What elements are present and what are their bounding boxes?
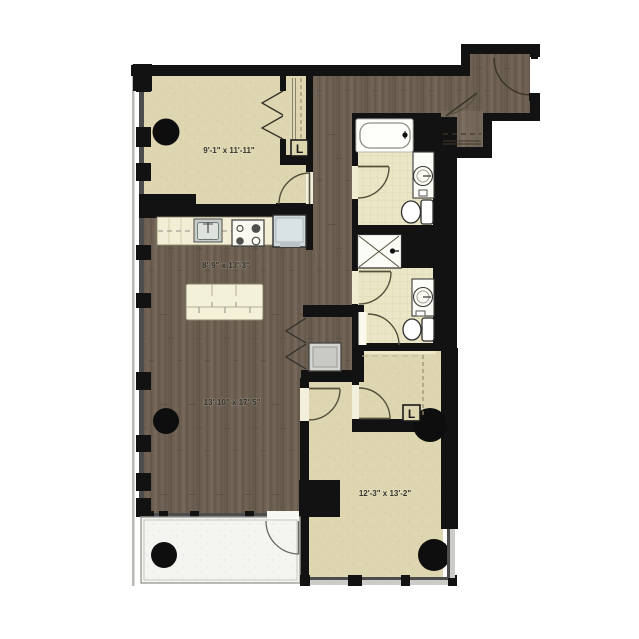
svg-text:13'-10" x 17'-5": 13'-10" x 17'-5" [204, 398, 261, 407]
svg-text:12'-3" x 13'-2": 12'-3" x 13'-2" [359, 489, 412, 498]
svg-text:8'-9" x 13'-3": 8'-9" x 13'-3" [202, 261, 250, 270]
svg-text:L: L [408, 407, 415, 421]
svg-text:9'-1" x 11'-11": 9'-1" x 11'-11" [203, 146, 255, 155]
svg-text:L: L [296, 142, 303, 156]
